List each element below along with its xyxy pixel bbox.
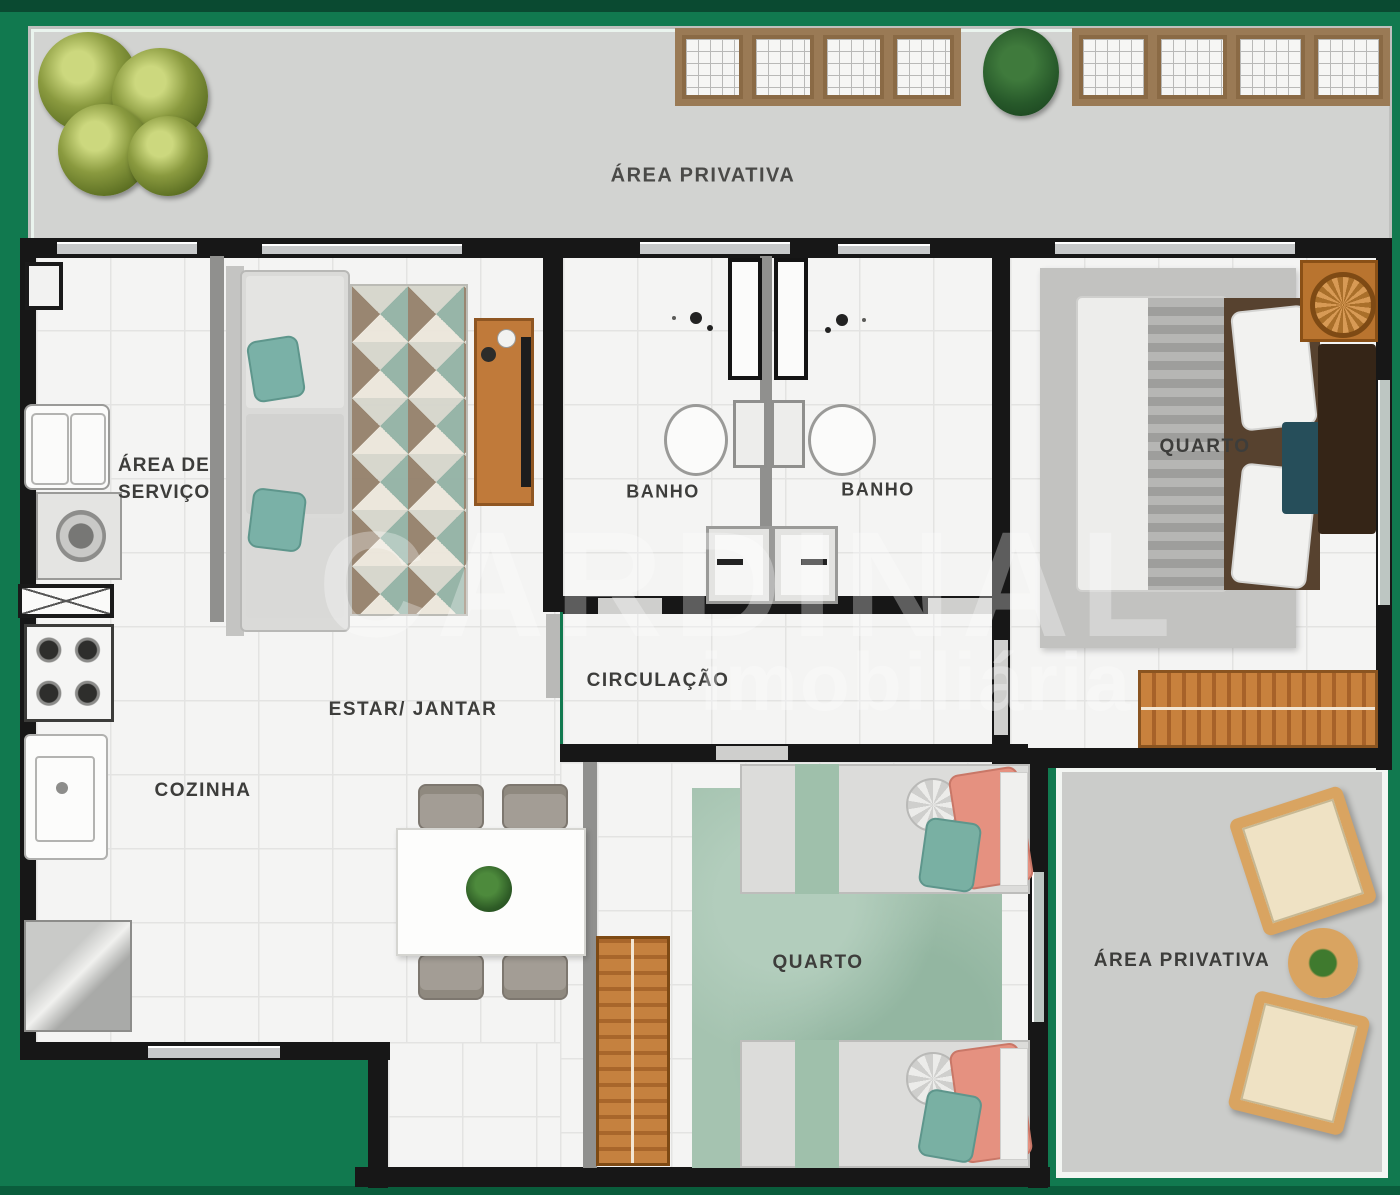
trellis-panel — [823, 35, 884, 99]
trellis-panel — [893, 35, 954, 99]
door-bedroom-suite — [994, 640, 1008, 735]
trellis-panel — [1157, 35, 1226, 99]
sofa-pillow — [247, 487, 308, 553]
window-suite-east — [1378, 380, 1390, 605]
runner-rug-wood — [1138, 670, 1378, 748]
door-bath-left — [598, 598, 662, 614]
label-service-line1: ÁREA DE — [118, 452, 210, 479]
rattan-side-table — [1300, 260, 1378, 342]
window-laundry — [57, 242, 197, 254]
window-bedroom-twin — [1032, 872, 1044, 1022]
window-kitchen — [148, 1046, 280, 1058]
trellis-panel — [1236, 35, 1305, 99]
headboard — [1318, 344, 1376, 534]
label-service-line2: SERVIÇO — [118, 479, 210, 506]
window-bath-right — [838, 244, 930, 254]
wall-bedroom-twin-left — [583, 762, 597, 1168]
pergola-panels-left — [675, 28, 961, 106]
refrigerator — [24, 920, 132, 1032]
table-plant — [466, 866, 512, 912]
floor-plan-canvas: ÁREA PRIVATIVA ÁREA DE SERVIÇO BANHO BAN… — [0, 0, 1400, 1195]
window-bedroom-suite — [1055, 242, 1295, 254]
label-circulation: CIRCULAÇÃO — [587, 670, 730, 692]
wall-bedroom-twin-top — [560, 744, 1028, 762]
trellis-panel — [1079, 35, 1148, 99]
trellis-panel — [682, 35, 743, 99]
shower-head — [836, 314, 848, 326]
wall-laundry-living — [210, 256, 224, 622]
label-kitchen: COZINHA — [154, 780, 251, 802]
toilet-cistern — [733, 400, 767, 468]
tv-console — [474, 318, 534, 506]
toilet-cistern — [771, 400, 805, 468]
twin-pillow-teal — [917, 1088, 984, 1165]
label-bathroom-right: BANHO — [841, 480, 915, 501]
toilet-bowl — [808, 404, 876, 476]
round-side-table — [1288, 928, 1358, 998]
label-living-dining: ESTAR/ JANTAR — [329, 699, 498, 721]
label-bathroom-left: BANHO — [626, 482, 700, 503]
window-living — [262, 244, 462, 254]
wall-bedroom-suite-bottom — [1010, 748, 1392, 768]
door-bath-right — [928, 598, 992, 614]
shower-tray — [706, 526, 772, 604]
sofa-pillow — [245, 334, 306, 403]
shower-tray — [772, 526, 838, 604]
label-service-area: ÁREA DE SERVIÇO — [118, 452, 210, 506]
label-bedroom-suite: QUARTO — [1160, 436, 1251, 458]
door-bedroom-twin — [716, 746, 788, 760]
dining-chair — [502, 784, 568, 830]
laundry-cabinet — [18, 584, 114, 618]
frame-bottom-strip — [0, 1186, 1400, 1195]
wall-bottom-bedroom-twin — [355, 1167, 1050, 1187]
frame-top-strip — [0, 0, 1400, 12]
floor-dining-extension — [388, 1042, 583, 1169]
tv — [521, 337, 531, 487]
shower-column — [728, 258, 762, 380]
wall-living-bath — [543, 256, 563, 612]
area-rug-geometric — [350, 284, 468, 616]
kitchen-counter-sink — [24, 734, 108, 860]
pergola-panels-right — [1072, 28, 1390, 106]
stove — [24, 624, 114, 722]
utility-box — [25, 262, 63, 310]
window-bath-left — [640, 242, 790, 254]
shower-head — [690, 312, 702, 324]
shower-column — [774, 258, 808, 380]
trellis-panel — [1314, 35, 1383, 99]
dining-chair — [418, 784, 484, 830]
door-living-corridor — [546, 614, 560, 698]
toilet-bowl — [664, 404, 728, 476]
trellis-panel — [752, 35, 813, 99]
dining-chair — [502, 954, 568, 1000]
twin-pillow-teal — [917, 816, 982, 893]
label-terrace-top: ÁREA PRIVATIVA — [611, 165, 796, 188]
label-bedroom-twin: QUARTO — [773, 952, 864, 974]
dresser-wood — [596, 936, 670, 1166]
shrub — [983, 28, 1059, 116]
utility-sink — [24, 404, 110, 490]
dining-chair — [418, 954, 484, 1000]
washing-machine — [36, 492, 122, 580]
label-terrace-bottom: ÁREA PRIVATIVA — [1094, 950, 1271, 972]
